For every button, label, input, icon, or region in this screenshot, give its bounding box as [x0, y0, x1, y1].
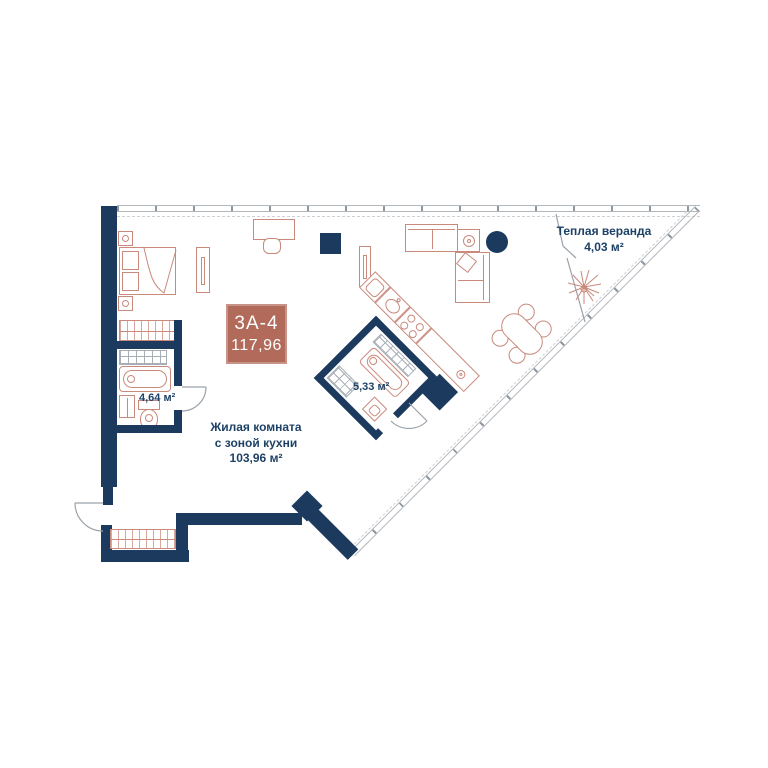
- wall-bathroom-bottom: [101, 425, 182, 433]
- column-round: [486, 231, 508, 253]
- living-room-name-line1: Жилая комната: [191, 420, 321, 436]
- dresser-handle: [201, 257, 205, 285]
- wardrobe: [119, 320, 182, 341]
- lamp-icon: [122, 300, 129, 307]
- table-lamp-dot: [467, 239, 471, 243]
- nightstand-bottom: [118, 296, 133, 311]
- wall-bathroom-top: [117, 341, 182, 349]
- window-wall-top: [117, 205, 700, 212]
- sofa-horizontal: [405, 224, 458, 252]
- bathtub: [119, 366, 171, 392]
- sofa-side-table: [457, 229, 480, 252]
- bathroom2-door-arc: [391, 421, 427, 428]
- bathroom2-rotated: [314, 316, 438, 440]
- washer-dryer: [119, 350, 167, 365]
- wall-bathroom-right-upper: [174, 320, 182, 386]
- sink-basin: [368, 403, 382, 417]
- bathroom-cabinet: [119, 395, 135, 418]
- cabinet-divider: [127, 398, 128, 417]
- bathroom2-door-leaf: [409, 403, 427, 421]
- veranda-name: Теплая веранда: [548, 224, 660, 240]
- wall-left: [101, 206, 117, 487]
- bathroom2-sink: [362, 396, 387, 421]
- lamp-icon: [122, 235, 129, 242]
- unit-code: 3А-4: [226, 313, 287, 335]
- desk-chair: [263, 238, 281, 254]
- veranda-label: Теплая веранда 4,03 м²: [548, 224, 660, 255]
- bathroom-area-label: 4,64 м²: [139, 392, 175, 404]
- living-room-label: Жилая комната с зоной кухни 103,96 м²: [191, 420, 321, 467]
- dresser: [196, 247, 210, 293]
- plant-icon: [568, 270, 601, 304]
- desk: [253, 219, 295, 240]
- wall-bottom: [176, 513, 302, 525]
- living-room-area: 103,96 м²: [191, 451, 321, 467]
- sofa-backrest: [483, 255, 484, 300]
- dining-table: [496, 308, 548, 360]
- toilet-bowl-inner: [145, 414, 153, 422]
- entrance-door-arc: [75, 503, 103, 531]
- floor-plan: 3А-4 117,96 4,64 м² 5,33 м² Жилая комнат…: [0, 0, 768, 768]
- sofa-cushion-divider: [432, 229, 433, 249]
- wall-bottom-diagonal: [295, 497, 358, 560]
- bathroom2-area-label: 5,33 м²: [353, 381, 389, 393]
- window-wall-top-dash: [117, 216, 700, 217]
- bed: [119, 247, 176, 295]
- column-square: [320, 233, 341, 254]
- veranda-area: 4,03 м²: [548, 240, 660, 256]
- bed-pillow: [122, 272, 139, 291]
- tv-screen: [363, 255, 367, 279]
- dining-set: [480, 292, 565, 377]
- bathroom-door-arc: [182, 387, 206, 411]
- entrance-closet: [110, 529, 176, 549]
- nightstand-top: [118, 231, 133, 246]
- bed-pillow: [122, 251, 139, 270]
- wall-left-lower: [103, 487, 113, 505]
- bathtub-drain: [127, 375, 135, 383]
- living-room-name-line2: с зоной кухни: [191, 436, 321, 452]
- sofa-cushion-divider: [458, 280, 483, 281]
- unit-total-area: 117,96: [226, 337, 287, 355]
- unit-badge: 3А-4 117,96: [226, 304, 287, 364]
